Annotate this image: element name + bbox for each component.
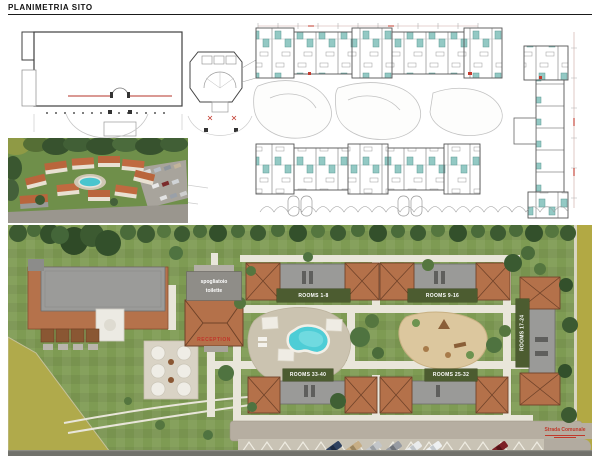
reception-label: RECEPTION xyxy=(186,337,242,346)
boundary-wall xyxy=(8,451,592,456)
label-rooms-33-40: ROOMS 33-40 xyxy=(283,369,333,381)
plan-sheet: PLANIMETRIA SITO xyxy=(0,0,600,460)
label-rooms-1-8-text: ROOMS 1-8 xyxy=(298,293,328,299)
reception-services-sign: spogliatoio toilette xyxy=(187,272,241,300)
title-rule xyxy=(8,14,592,15)
label-rooms-33-40-text: ROOMS 33-40 xyxy=(290,372,326,378)
page-title: PLANIMETRIA SITO xyxy=(8,3,93,12)
road-label-text: Strada Comunale xyxy=(544,427,585,433)
aerial-render-thumbnail xyxy=(8,138,188,223)
plan-vertical-room-wing xyxy=(514,46,568,218)
terrace-parasols xyxy=(41,329,99,350)
plan-upper-room-wing xyxy=(256,28,502,78)
label-rooms-25-32-text: ROOMS 25-32 xyxy=(433,372,469,378)
label-rooms-9-16: ROOMS 9-16 xyxy=(408,289,477,302)
spogliatoio-label: spogliatoio xyxy=(201,279,228,285)
plan-restaurant-building xyxy=(22,32,182,138)
playground xyxy=(399,312,487,369)
label-rooms-1-8: ROOMS 1-8 xyxy=(277,289,350,302)
plan-lower-room-wing xyxy=(256,144,480,216)
umbrella-terrace xyxy=(144,341,198,399)
road-label-underline xyxy=(545,435,585,436)
reception-label-text: RECEPTION xyxy=(197,337,231,343)
boundary-wall-top xyxy=(8,450,592,451)
aerial-pool xyxy=(79,177,101,187)
plan-garden-paths xyxy=(254,81,503,140)
toilette-label: toilette xyxy=(206,288,222,294)
site-plan-render: ROOMS 1-8 ROOMS 9-16 ROOMS 17-24 ROOMS 3… xyxy=(8,225,592,456)
label-rooms-25-32: ROOMS 25-32 xyxy=(425,369,477,381)
road-label: Strada Comunale xyxy=(538,428,592,438)
road-label-underline-2 xyxy=(554,437,576,438)
plan-reception-building xyxy=(188,52,256,136)
label-rooms-9-16-text: ROOMS 9-16 xyxy=(426,293,459,299)
field-wedge xyxy=(8,337,113,456)
label-rooms-17-24: ROOMS 17-24 xyxy=(516,299,529,367)
label-rooms-17-24-text: ROOMS 17-24 xyxy=(520,315,526,351)
